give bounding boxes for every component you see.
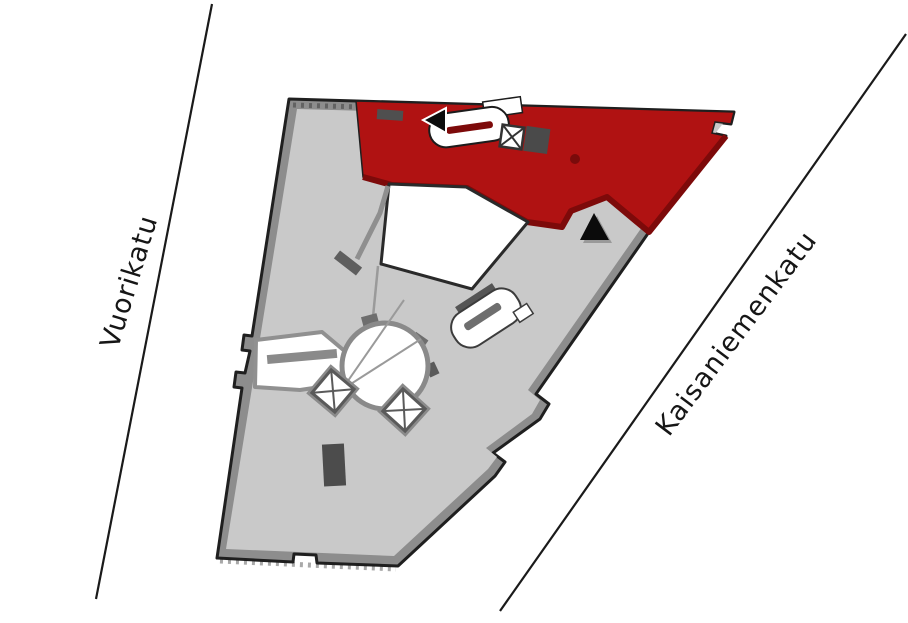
column-dot	[570, 154, 580, 164]
street-label-vuorikatu: Vuorikatu	[95, 212, 165, 352]
shaft-rect	[322, 443, 346, 486]
building-footprint	[217, 97, 734, 569]
shaft-rect	[523, 126, 550, 154]
street-label-kaisaniemenkatu: Kaisaniemenkatu	[650, 226, 824, 442]
site-plan: Vuorikatu Kaisaniemenkatu	[0, 0, 908, 623]
site-plan-canvas: Vuorikatu Kaisaniemenkatu	[0, 0, 908, 623]
duct-rect	[377, 109, 404, 121]
